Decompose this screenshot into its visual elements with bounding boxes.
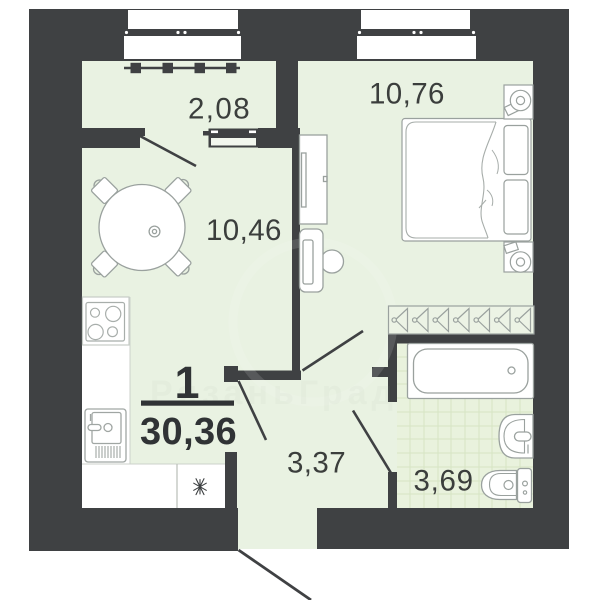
svg-text:2,08: 2,08 [188,93,251,126]
svg-text:30,36: 30,36 [140,411,237,453]
svg-text:10,76: 10,76 [369,78,445,111]
svg-text:1: 1 [174,357,199,408]
svg-text:3,37: 3,37 [287,447,346,480]
svg-text:10,46: 10,46 [206,214,282,247]
svg-text:3,69: 3,69 [414,465,474,498]
